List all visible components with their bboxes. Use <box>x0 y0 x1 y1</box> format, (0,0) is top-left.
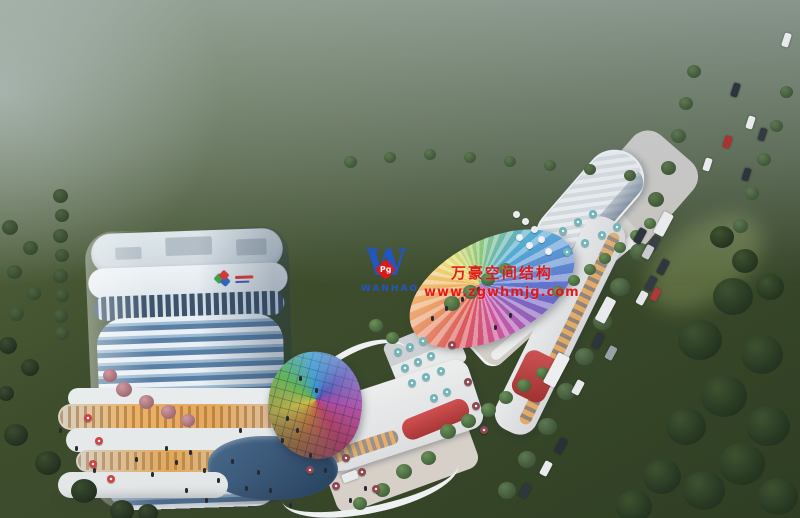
podium-shadow <box>58 494 308 508</box>
watermark-company: 万豪空间结构 <box>424 262 580 283</box>
watermark-website: www.zgwhmjg.com <box>424 285 580 300</box>
watermark-text: 万豪空间结构 www.zgwhmjg.com <box>424 262 580 300</box>
watermark-logo-icon: W Pg WANHAO <box>360 248 416 302</box>
aerial-rendering-canvas: 万达广场 <box>0 0 800 518</box>
logo-text-bar <box>235 281 249 284</box>
tower-brand-logo-icon <box>215 269 262 289</box>
watermark: W Pg WANHAO 万豪空间结构 www.zgwhmjg.com <box>360 248 580 302</box>
logo-text-bar <box>235 275 253 279</box>
watermark-logo-word: WANHAO <box>360 284 420 294</box>
podium-lit-storefront <box>58 404 304 430</box>
